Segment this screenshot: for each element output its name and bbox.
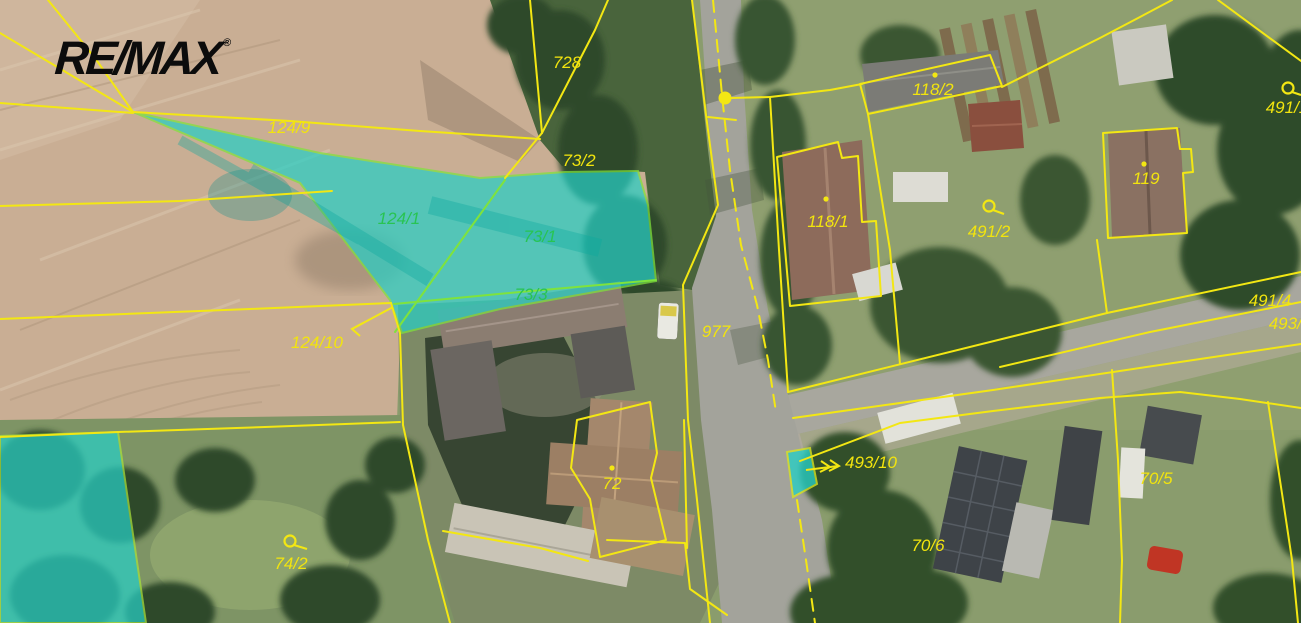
parcel-label-73-3: 73/3 xyxy=(514,285,548,304)
parcel-point-118-2 xyxy=(932,72,937,77)
boundary-point-marker xyxy=(719,92,732,105)
parcel-point-72 xyxy=(609,465,614,470)
parcel-label-491-1: 491/1 xyxy=(1266,98,1301,117)
map-canvas: 728 124/9 73/2 124/1 73/1 73/3 124/10 97… xyxy=(0,0,1301,623)
parcel-label-491-2: 491/2 xyxy=(968,222,1011,241)
parcel-label-124-9: 124/9 xyxy=(268,118,311,137)
remax-logo: RE/MAX® xyxy=(53,34,231,81)
parcel-label-73-1: 73/1 xyxy=(523,227,556,246)
parcel-point-118-1 xyxy=(823,196,828,201)
parcel-label-74-2: 74/2 xyxy=(274,554,308,573)
parcel-label-493-4: 493/4 xyxy=(1269,314,1301,333)
parcel-label-119: 119 xyxy=(1132,169,1160,188)
parcel-label-124-10: 124/10 xyxy=(291,333,344,352)
parcel-label-70-5: 70/5 xyxy=(1139,469,1173,488)
parcel-label-124-1: 124/1 xyxy=(378,209,421,228)
remax-logo-text: RE/MAX xyxy=(53,31,222,84)
parcel-point-119 xyxy=(1141,161,1146,166)
parcel-label-118-1: 118/1 xyxy=(807,212,848,231)
parcel-label-72: 72 xyxy=(603,474,622,493)
parcel-label-118-2: 118/2 xyxy=(912,80,954,99)
parcel-label-70-6: 70/6 xyxy=(911,536,945,555)
parcel-label-491-4: 491/4 xyxy=(1249,291,1292,310)
parcel-label-728: 728 xyxy=(553,53,582,72)
parcel-label-977: 977 xyxy=(702,322,731,341)
cadastral-map-screenshot: 728 124/9 73/2 124/1 73/1 73/3 124/10 97… xyxy=(0,0,1301,623)
parcel-label-73-2: 73/2 xyxy=(562,151,596,170)
parcel-label-493-10: 493/10 xyxy=(845,453,898,472)
registered-trademark-icon: ® xyxy=(222,37,231,49)
